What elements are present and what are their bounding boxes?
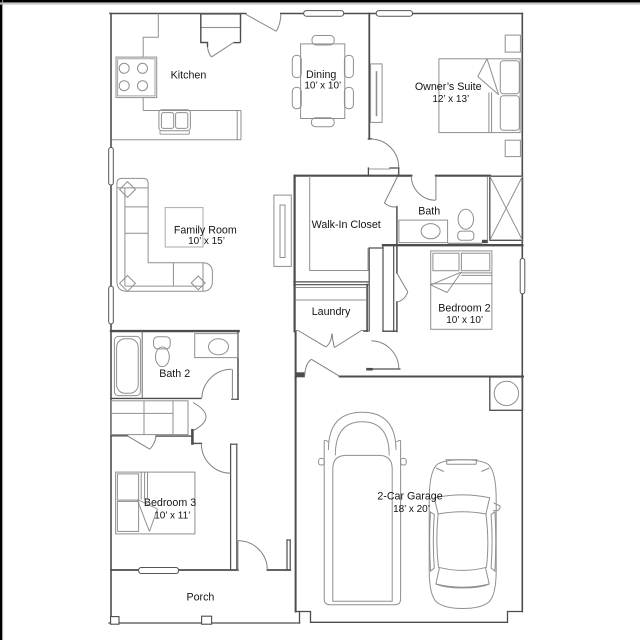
svg-text:Kitchen: Kitchen: [171, 70, 207, 82]
svg-text:Dining: Dining: [306, 69, 336, 81]
svg-text:Laundry: Laundry: [312, 306, 351, 318]
svg-text:Walk-In Closet: Walk-In Closet: [312, 219, 381, 231]
svg-text:18’ x 20’: 18’ x 20’: [393, 504, 430, 515]
svg-text:10’ x 10’: 10’ x 10’: [446, 315, 483, 326]
svg-text:Porch: Porch: [186, 591, 214, 603]
svg-text:10’ x 11’: 10’ x 11’: [154, 511, 190, 522]
svg-text:Family Room: Family Room: [174, 224, 237, 236]
svg-text:10’ x 10’: 10’ x 10’: [304, 80, 341, 91]
svg-text:12’ x 13’: 12’ x 13’: [432, 94, 469, 105]
svg-text:2-Car Garage: 2-Car Garage: [377, 491, 442, 503]
svg-text:Bedroom 3: Bedroom 3: [144, 497, 196, 509]
svg-text:Bath: Bath: [418, 206, 440, 218]
svg-text:10’ x 15’: 10’ x 15’: [188, 236, 225, 247]
svg-text:Owner’s Suite: Owner’s Suite: [415, 81, 482, 93]
svg-text:Bedroom 2: Bedroom 2: [438, 302, 490, 314]
svg-text:Bath 2: Bath 2: [159, 368, 190, 380]
